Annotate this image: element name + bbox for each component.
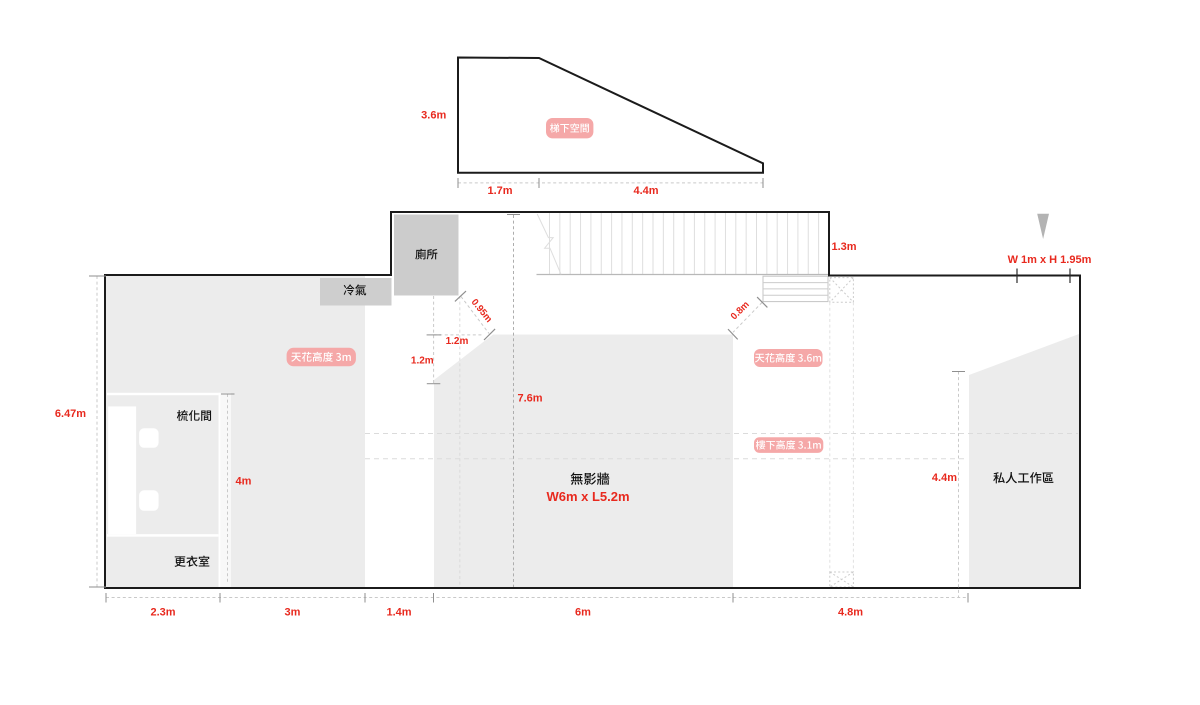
svg-text:3.6m: 3.6m [421, 110, 446, 122]
svg-text:4.4m: 4.4m [633, 185, 658, 197]
svg-text:4m: 4m [236, 476, 252, 488]
svg-text:3m: 3m [285, 607, 301, 619]
svg-text:1.3m: 1.3m [832, 241, 857, 253]
svg-text:1.7m: 1.7m [487, 185, 512, 197]
svg-text:W6m x L5.2m: W6m x L5.2m [546, 489, 629, 504]
svg-text:4.8m: 4.8m [838, 607, 863, 619]
svg-text:2.3m: 2.3m [150, 607, 175, 619]
svg-text:W 1m x H 1.95m: W 1m x H 1.95m [1008, 254, 1092, 266]
svg-text:7.6m: 7.6m [518, 393, 543, 405]
svg-text:1.4m: 1.4m [386, 607, 411, 619]
svg-text:6m: 6m [575, 607, 591, 619]
svg-text:1.2m: 1.2m [446, 336, 469, 347]
svg-text:4.4m: 4.4m [932, 472, 957, 484]
svg-text:1.2m: 1.2m [411, 356, 434, 367]
svg-text:6.47m: 6.47m [55, 408, 86, 420]
